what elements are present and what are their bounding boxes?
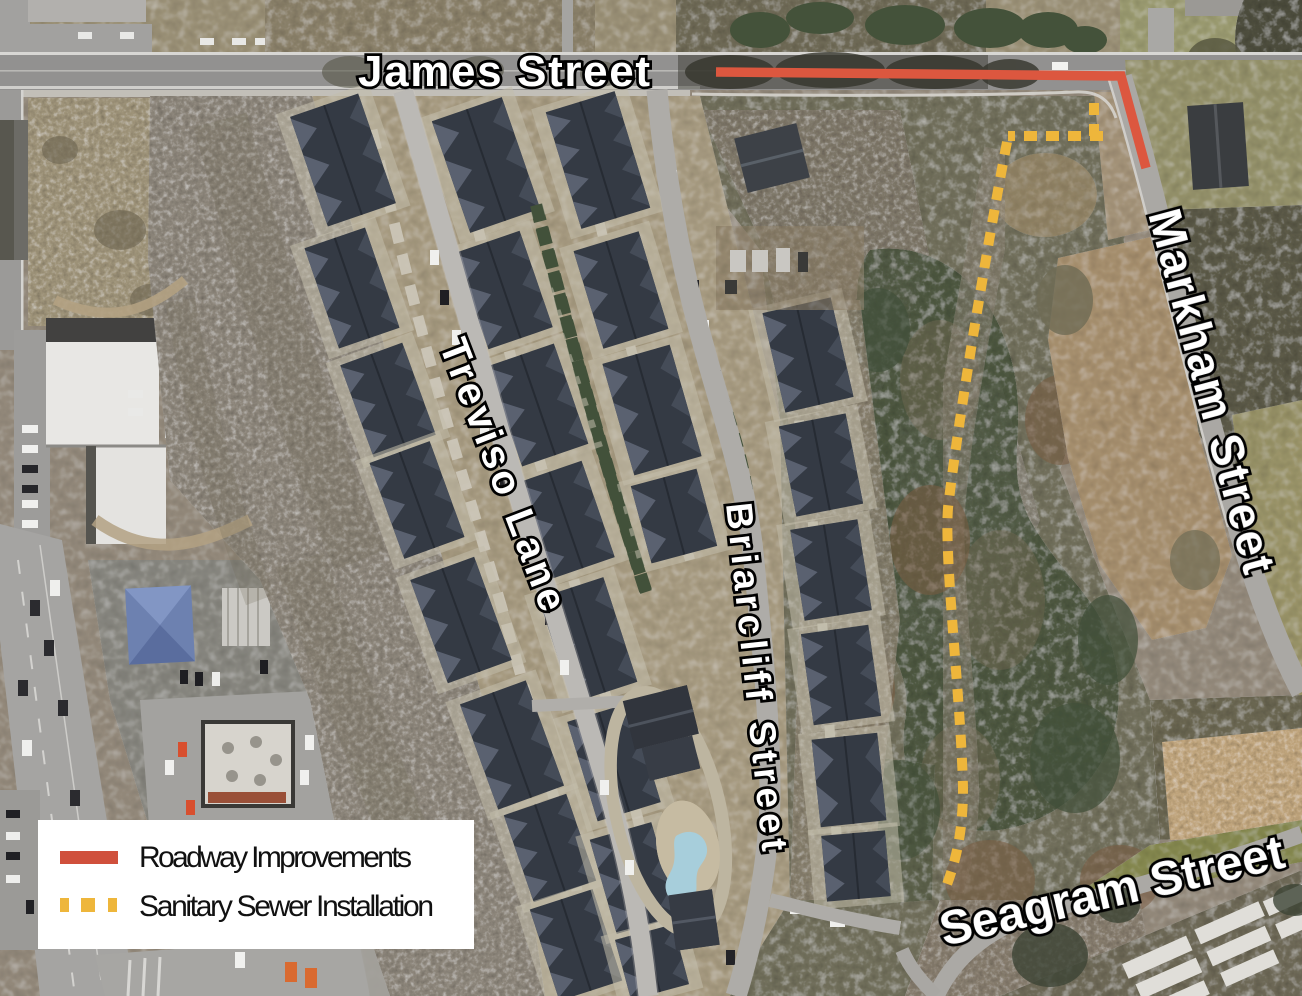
svg-text:Sanitary Sewer Installation: Sanitary Sewer Installation [139,890,434,923]
svg-text:Roadway Improvements: Roadway Improvements [139,841,412,874]
svg-text:James Street: James Street [358,47,650,96]
